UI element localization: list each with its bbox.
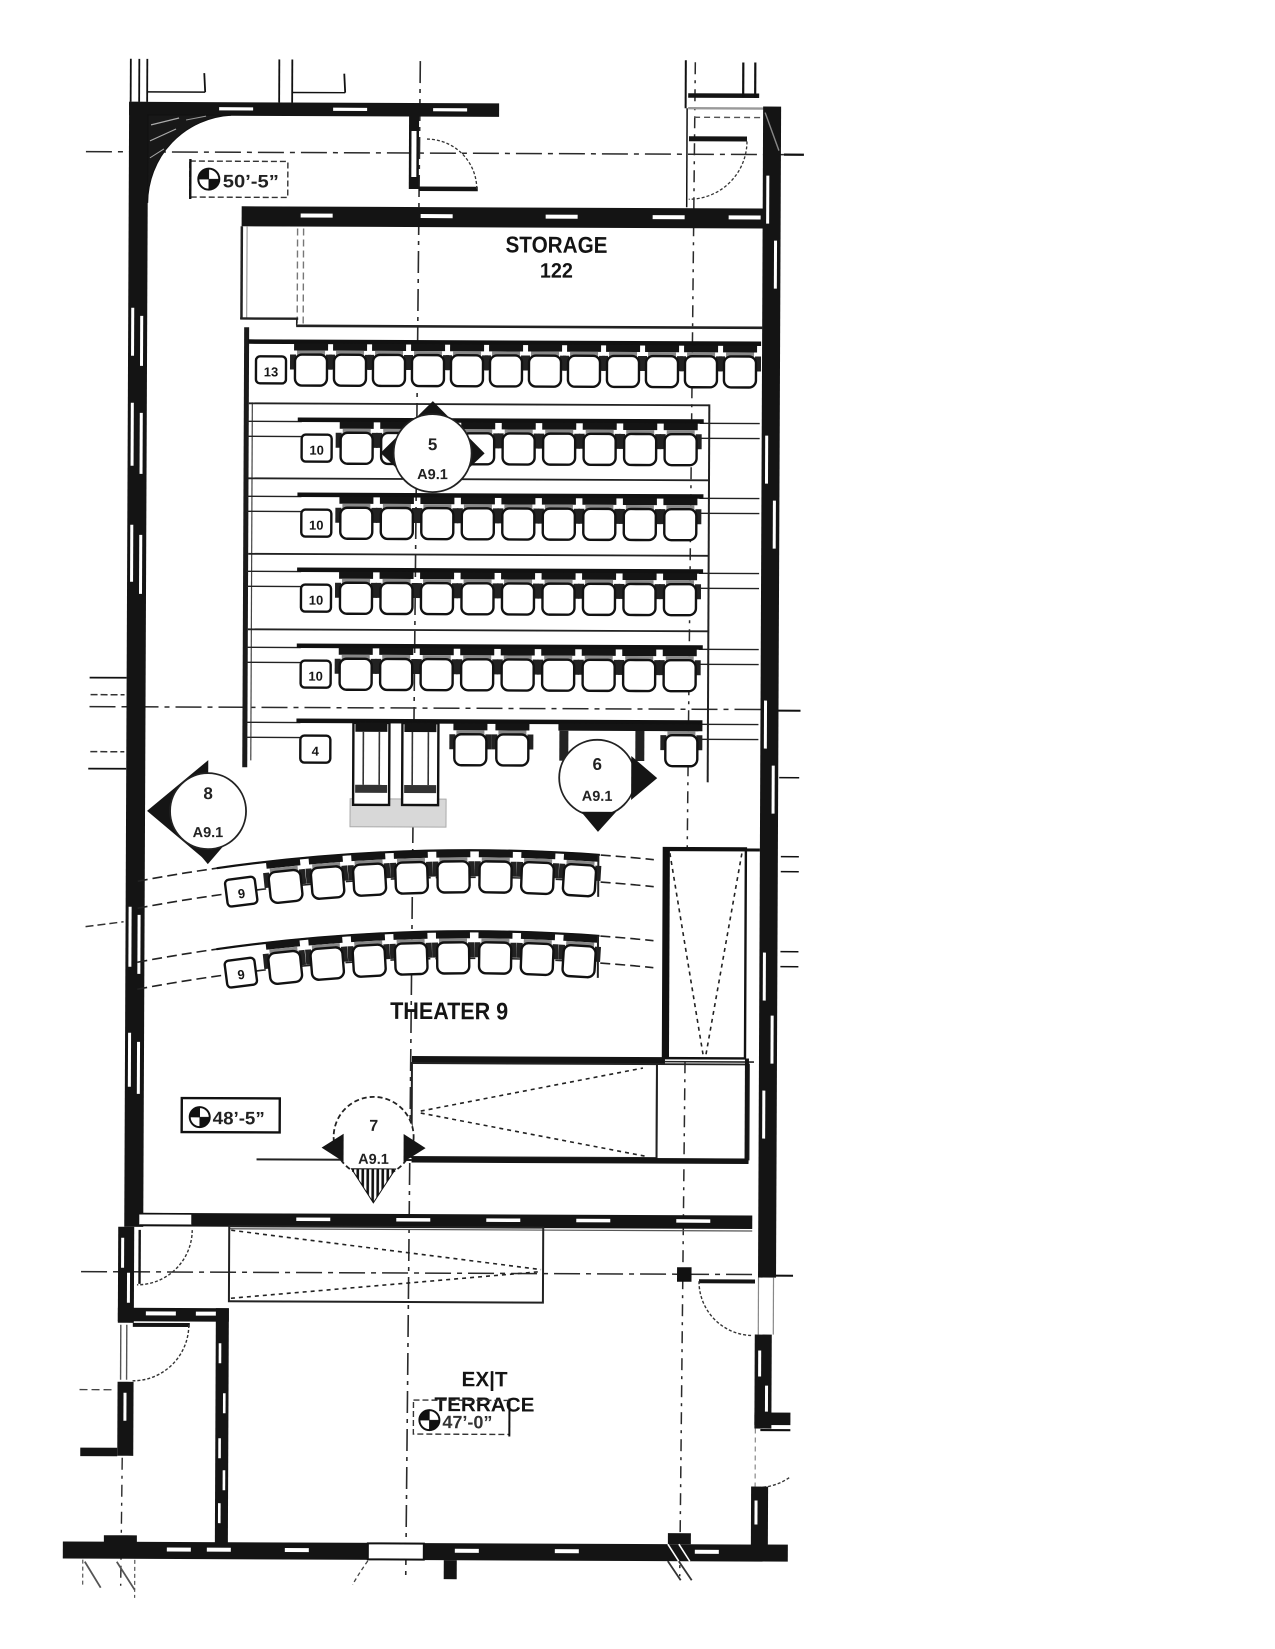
svg-text:A9.1: A9.1	[193, 825, 224, 841]
svg-text:THEATER 9: THEATER 9	[390, 998, 508, 1026]
svg-text:13: 13	[264, 364, 279, 379]
svg-text:A9.1: A9.1	[358, 1152, 389, 1168]
svg-text:122: 122	[540, 260, 573, 283]
svg-text:10: 10	[309, 593, 324, 608]
svg-text:10: 10	[308, 669, 323, 684]
svg-text:A9.1: A9.1	[417, 467, 448, 483]
svg-text:50’-5”: 50’-5”	[223, 171, 279, 191]
svg-text:10: 10	[309, 443, 324, 458]
svg-text:7: 7	[369, 1118, 378, 1135]
svg-text:6: 6	[592, 755, 602, 774]
svg-text:STORAGE: STORAGE	[505, 231, 607, 257]
svg-text:4: 4	[312, 744, 320, 759]
svg-text:10: 10	[309, 518, 324, 533]
svg-text:8: 8	[203, 784, 213, 803]
svg-text:EX|T: EX|T	[462, 1368, 508, 1391]
svg-text:47’-0”: 47’-0”	[442, 1412, 492, 1432]
svg-text:A9.1: A9.1	[582, 789, 613, 805]
svg-text:5: 5	[428, 435, 438, 454]
svg-text:48’-5”: 48’-5”	[213, 1108, 265, 1128]
